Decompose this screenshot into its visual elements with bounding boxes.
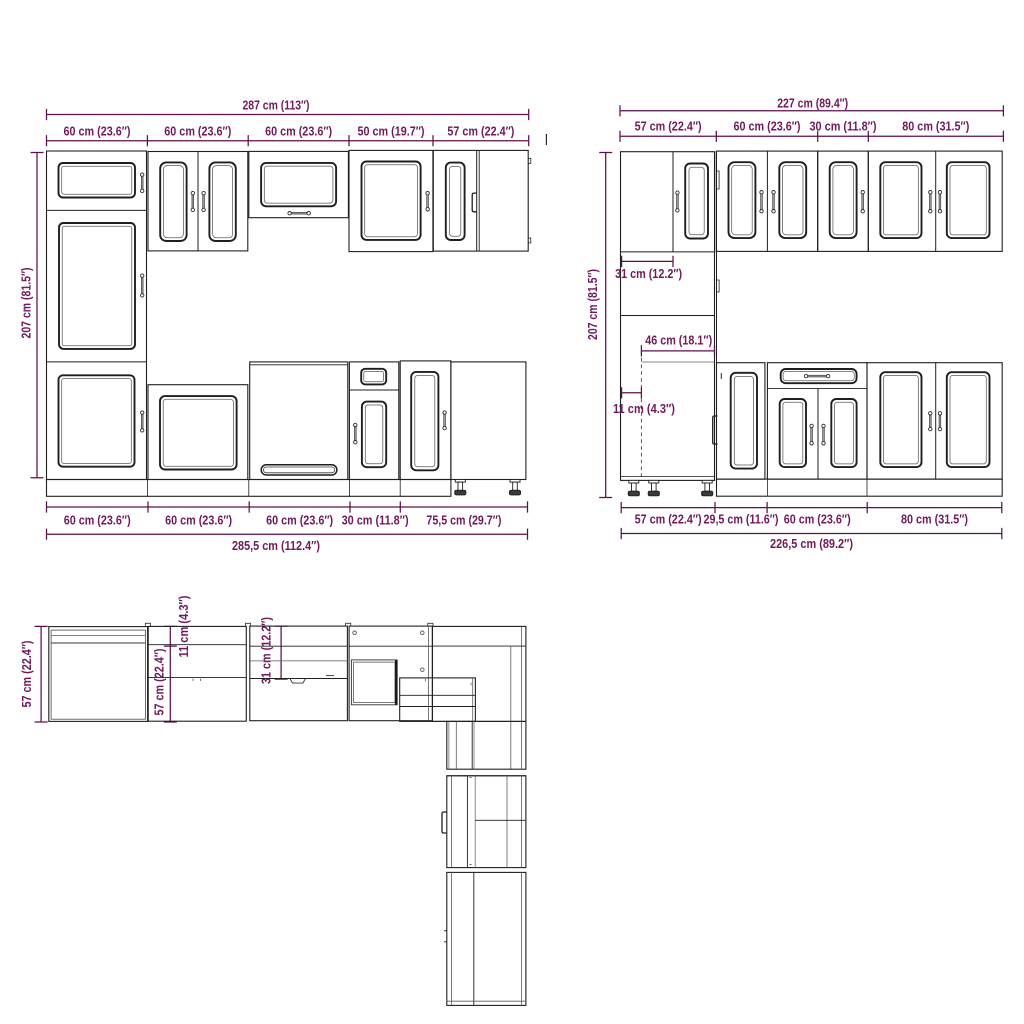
svg-text:57 cm (22.4″): 57 cm (22.4″) — [20, 641, 34, 708]
svg-text:226,5 cm (89.2″): 226,5 cm (89.2″) — [770, 537, 853, 551]
svg-text:30 cm (11.8″): 30 cm (11.8″) — [810, 119, 877, 133]
svg-text:30 cm (11.8″): 30 cm (11.8″) — [342, 514, 409, 528]
svg-text:57 cm (22.4″): 57 cm (22.4″) — [447, 124, 514, 138]
svg-text:60 cm (23.6″): 60 cm (23.6″) — [265, 124, 332, 138]
svg-text:287 cm (113″): 287 cm (113″) — [243, 99, 310, 113]
svg-text:60 cm (23.6″): 60 cm (23.6″) — [165, 514, 232, 528]
svg-text:60 cm (23.6″): 60 cm (23.6″) — [64, 514, 131, 528]
svg-text:80 cm (31.5″): 80 cm (31.5″) — [902, 119, 969, 133]
svg-text:31 cm (12.2″): 31 cm (12.2″) — [615, 267, 682, 281]
svg-text:60 cm (23.6″): 60 cm (23.6″) — [266, 514, 333, 528]
svg-text:227 cm (89.4″): 227 cm (89.4″) — [777, 97, 848, 111]
svg-text:75,5 cm (29.7″): 75,5 cm (29.7″) — [426, 514, 501, 528]
svg-text:50 cm (19.7″): 50 cm (19.7″) — [358, 124, 425, 138]
svg-text:60 cm (23.6″): 60 cm (23.6″) — [734, 119, 801, 133]
svg-text:60 cm (23.6″): 60 cm (23.6″) — [64, 124, 131, 138]
svg-text:57 cm (22.4″): 57 cm (22.4″) — [153, 649, 167, 716]
svg-text:46 cm (18.1″): 46 cm (18.1″) — [645, 334, 712, 348]
svg-text:57 cm (22.4″): 57 cm (22.4″) — [635, 119, 702, 133]
svg-text:11 cm (4.3″): 11 cm (4.3″) — [613, 402, 675, 416]
svg-text:60 cm (23.6″): 60 cm (23.6″) — [784, 513, 851, 527]
svg-text:60 cm (23.6″): 60 cm (23.6″) — [164, 124, 231, 138]
svg-text:29,5 cm (11.6″): 29,5 cm (11.6″) — [704, 513, 779, 527]
svg-text:285,5 cm (112.4″): 285,5 cm (112.4″) — [232, 539, 320, 553]
svg-text:207 cm (81.5″): 207 cm (81.5″) — [20, 268, 34, 339]
svg-text:207 cm (81.5″): 207 cm (81.5″) — [586, 269, 600, 340]
svg-text:57 cm (22.4″): 57 cm (22.4″) — [635, 513, 702, 527]
svg-text:31 cm (12.2″): 31 cm (12.2″) — [260, 617, 274, 684]
svg-text:80 cm (31.5″): 80 cm (31.5″) — [901, 513, 968, 527]
